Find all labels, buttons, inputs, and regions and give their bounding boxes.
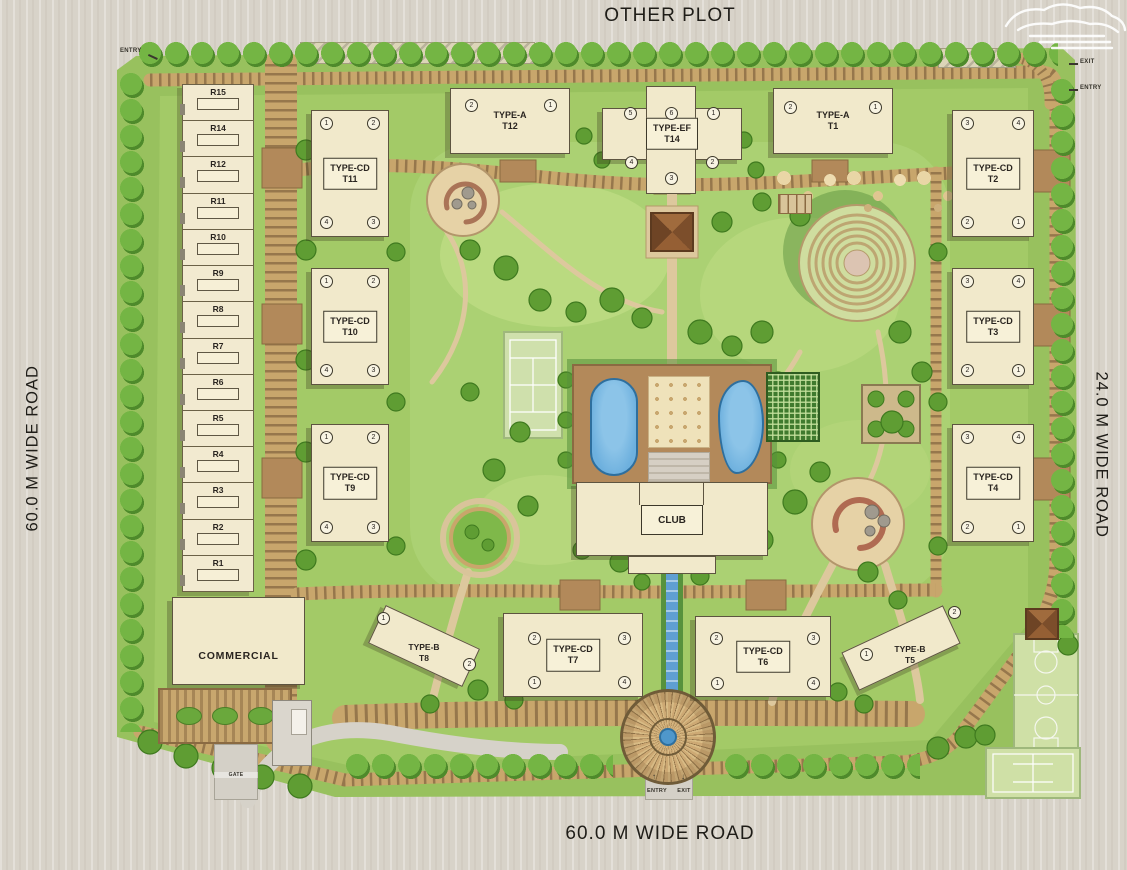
- rowhouse-unit: R14: [183, 121, 253, 157]
- unit-number: 2: [948, 606, 961, 619]
- exit-tick: [1069, 63, 1078, 65]
- tower-t4: 3 4 2 1 TYPE-CDT4: [952, 424, 1034, 542]
- rowhouse-footprint: [197, 424, 239, 436]
- parking-island: [176, 707, 202, 725]
- rowhouse-label: R8: [213, 304, 224, 314]
- unit-number: 3: [961, 431, 974, 444]
- other-plot-label: OTHER PLOT: [565, 5, 775, 27]
- unit-number: 3: [367, 216, 380, 229]
- unit-number: 1: [320, 431, 333, 444]
- unit-number: 3: [961, 275, 974, 288]
- unit-number: 2: [367, 275, 380, 288]
- rowhouse-unit: R12: [183, 157, 253, 193]
- tower-t9: 1 2 4 3 TYPE-CDT9: [311, 424, 389, 542]
- unit-number: 5: [624, 107, 637, 120]
- unit-number: 3: [665, 172, 678, 185]
- rowhouse-label: R14: [210, 123, 226, 133]
- unit-number: 1: [320, 275, 333, 288]
- rowhouse-label: R10: [210, 232, 226, 242]
- rowhouse-label: R9: [213, 268, 224, 278]
- unit-number: 3: [618, 632, 631, 645]
- unit-number: 2: [961, 521, 974, 534]
- unit-number: 4: [1012, 275, 1025, 288]
- entry-arrow-icon: ↑: [652, 772, 656, 781]
- unit-number: 2: [961, 216, 974, 229]
- tower-t7-label: TYPE-CDT7: [546, 639, 600, 672]
- unit-number: 3: [367, 521, 380, 534]
- rowhouse-strip: R15 R14 R12 R11 R10 R9 R8 R7 R6 R5 R4 R3…: [182, 84, 254, 592]
- unit-number: 2: [367, 117, 380, 130]
- rowhouse-unit: R1: [183, 556, 253, 591]
- rowhouse-footprint: [197, 460, 239, 472]
- unit-number: 1: [544, 99, 557, 112]
- unit-number: 3: [961, 117, 974, 130]
- rowhouse-unit: R9: [183, 266, 253, 302]
- unit-number: 2: [465, 99, 478, 112]
- tower-t2: 3 4 2 1 TYPE-CDT2: [952, 110, 1034, 237]
- water-channel: [661, 556, 683, 692]
- tower-t14-label: TYPE-EFT14: [646, 117, 698, 150]
- rowhouse-label: R11: [210, 196, 225, 206]
- deck-terrace: [648, 452, 710, 482]
- picnic-tables: [778, 194, 812, 214]
- top-right-exit-label: EXIT: [1080, 59, 1095, 65]
- unit-number: 1: [707, 107, 720, 120]
- tower-t10-label: TYPE-CDT10: [323, 310, 377, 343]
- rowhouse-footprint: [197, 496, 239, 508]
- unit-number: 1: [869, 101, 882, 114]
- tower-t4-label: TYPE-CDT4: [966, 467, 1020, 500]
- bottom-entry-label: ENTRY: [643, 788, 671, 794]
- lap-pool: [590, 378, 638, 476]
- utility-building: [272, 700, 312, 766]
- bottom-exit-label: EXIT: [672, 788, 696, 794]
- unit-number: 2: [784, 101, 797, 114]
- rowhouse-unit: R8: [183, 302, 253, 338]
- top-left-entry-label: ENTRY: [120, 48, 142, 54]
- tower-t6: 2 3 1 4 TYPE-CDT6: [695, 616, 831, 697]
- unit-number: 3: [367, 364, 380, 377]
- rowhouse-footprint: [197, 569, 239, 581]
- left-road-label: 60.0 M WIDE ROAD: [24, 372, 43, 532]
- rowhouse-footprint: [197, 315, 239, 327]
- tower-t8-label: TYPE-BT8: [392, 642, 456, 663]
- rowhouse-label: R4: [213, 449, 224, 459]
- tower-t12-label: TYPE-AT12: [493, 110, 526, 133]
- rowhouse-label: R7: [213, 341, 224, 351]
- tennis-court: [504, 332, 562, 438]
- rowhouse-footprint: [197, 243, 239, 255]
- commercial-building: COMMERCIAL: [172, 597, 305, 685]
- gate-label: GATE: [214, 772, 258, 778]
- tower-t3-label: TYPE-CDT3: [966, 310, 1020, 343]
- rowhouse-label: R5: [213, 413, 224, 423]
- tree-row-top: [138, 41, 1058, 68]
- parking-island: [212, 707, 238, 725]
- unit-number: 4: [807, 677, 820, 690]
- tree-row-right: [1050, 78, 1077, 638]
- unit-number: 4: [320, 364, 333, 377]
- maze-garden: [766, 372, 820, 442]
- rowhouse-footprint: [197, 533, 239, 545]
- unit-number: 1: [1012, 521, 1025, 534]
- rowhouse-footprint: [197, 134, 239, 146]
- club-wall: [639, 483, 640, 505]
- unit-number: 4: [1012, 117, 1025, 130]
- unit-number: 2: [710, 632, 723, 645]
- rowhouse-label: R6: [213, 377, 224, 387]
- rowhouse-footprint: [197, 98, 239, 110]
- pavilion-pyramid-corner: [1025, 608, 1059, 640]
- rowhouse-label: R12: [210, 159, 226, 169]
- unit-number: 1: [528, 676, 541, 689]
- right-road-label: 24.0 M WIDE ROAD: [1092, 372, 1111, 532]
- unit-number: 1: [377, 612, 390, 625]
- tower-t1-label: TYPE-AT1: [816, 110, 849, 133]
- utility-roof: [291, 709, 307, 735]
- unit-number: 1: [711, 677, 724, 690]
- unit-number: 1: [320, 117, 333, 130]
- rowhouse-footprint: [197, 279, 239, 291]
- unit-number: 3: [807, 632, 820, 645]
- commercial-label: COMMERCIAL: [173, 650, 304, 662]
- unit-number: 1: [1012, 364, 1025, 377]
- unit-number: 2: [961, 364, 974, 377]
- round-lawn: [443, 501, 517, 575]
- unit-number: 4: [1012, 431, 1025, 444]
- zen-garden-top-left: [427, 164, 499, 236]
- tower-t2-label: TYPE-CDT2: [966, 157, 1020, 190]
- tower-t6-label: TYPE-CDT6: [736, 640, 790, 673]
- tower-t3: 3 4 2 1 TYPE-CDT3: [952, 268, 1034, 385]
- unit-number: 4: [320, 216, 333, 229]
- unit-number: 4: [618, 676, 631, 689]
- zen-garden-bottom-right: [812, 478, 904, 570]
- unit-number: 1: [860, 648, 873, 661]
- rowhouse-unit: R5: [183, 411, 253, 447]
- club-wall: [703, 483, 704, 505]
- mandala-plaza-fountain: [620, 689, 716, 785]
- unit-number: 4: [625, 156, 638, 169]
- top-right-entry-label: ENTRY: [1080, 85, 1102, 91]
- pool-deck: [572, 364, 772, 484]
- rowhouse-unit: R11: [183, 194, 253, 230]
- tennis-court-2: [986, 748, 1080, 798]
- rowhouse-footprint: [197, 207, 239, 219]
- unit-number: 2: [367, 431, 380, 444]
- tower-t11-label: TYPE-CDT11: [323, 157, 377, 190]
- rowhouse-footprint: [197, 352, 239, 364]
- rowhouse-unit: R7: [183, 339, 253, 375]
- unit-number: 6: [665, 107, 678, 120]
- tree-row-bottom-right: [724, 753, 920, 780]
- tower-t5-label: TYPE-BT5: [880, 644, 940, 665]
- tree-row-left: [119, 72, 146, 732]
- rowhouse-unit: R6: [183, 375, 253, 411]
- rowhouse-label: R2: [213, 522, 224, 532]
- unit-number: 2: [463, 658, 476, 671]
- tower-t7: 2 3 1 4 TYPE-CDT7: [503, 613, 643, 697]
- tower-t10: 1 2 4 3 TYPE-CDT10: [311, 268, 389, 385]
- tower-t9-label: TYPE-CDT9: [323, 467, 377, 500]
- tower-t12: 2 1 TYPE-AT12: [450, 88, 570, 154]
- rowhouse-label: R1: [213, 558, 224, 568]
- rowhouse-label: R15: [210, 87, 226, 97]
- rowhouse-footprint: [197, 170, 239, 182]
- rowhouse-unit: R4: [183, 447, 253, 483]
- unit-number: 1: [1012, 216, 1025, 229]
- site-plan: R15 R14 R12 R11 R10 R9 R8 R7 R6 R5 R4 R3…: [0, 0, 1127, 870]
- exit-arrow-icon: ↓: [681, 772, 685, 781]
- rowhouse-unit: R10: [183, 230, 253, 266]
- deck-plaza: [648, 376, 710, 448]
- club-building: CLUB: [576, 482, 768, 556]
- unit-number: 2: [528, 632, 541, 645]
- rowhouse-unit: R15: [183, 85, 253, 121]
- rowhouse-label: R3: [213, 485, 224, 495]
- rowhouse-footprint: [197, 388, 239, 400]
- pavilion-pyramid-central: [650, 212, 694, 252]
- rowhouse-unit: R3: [183, 483, 253, 519]
- tower-t14: TYPE-EFT14 5 6 1 4 2 3: [602, 86, 742, 194]
- tower-t1: 2 1 TYPE-AT1: [773, 88, 893, 154]
- watermark-logo-icon: [1000, 0, 1127, 50]
- bottom-road-label: 60.0 M WIDE ROAD: [555, 823, 765, 845]
- parking-island: [248, 707, 274, 725]
- tree-row-bottom-left: [345, 753, 613, 780]
- tower-t11: 1 2 4 3 TYPE-CDT11: [311, 110, 389, 237]
- entry-tick-2: [1069, 89, 1078, 91]
- unit-number: 2: [706, 156, 719, 169]
- rowhouse-unit: R2: [183, 520, 253, 556]
- club-portico: [628, 556, 716, 574]
- unit-number: 4: [320, 521, 333, 534]
- club-label: CLUB: [641, 505, 703, 535]
- leisure-pool: [718, 380, 764, 474]
